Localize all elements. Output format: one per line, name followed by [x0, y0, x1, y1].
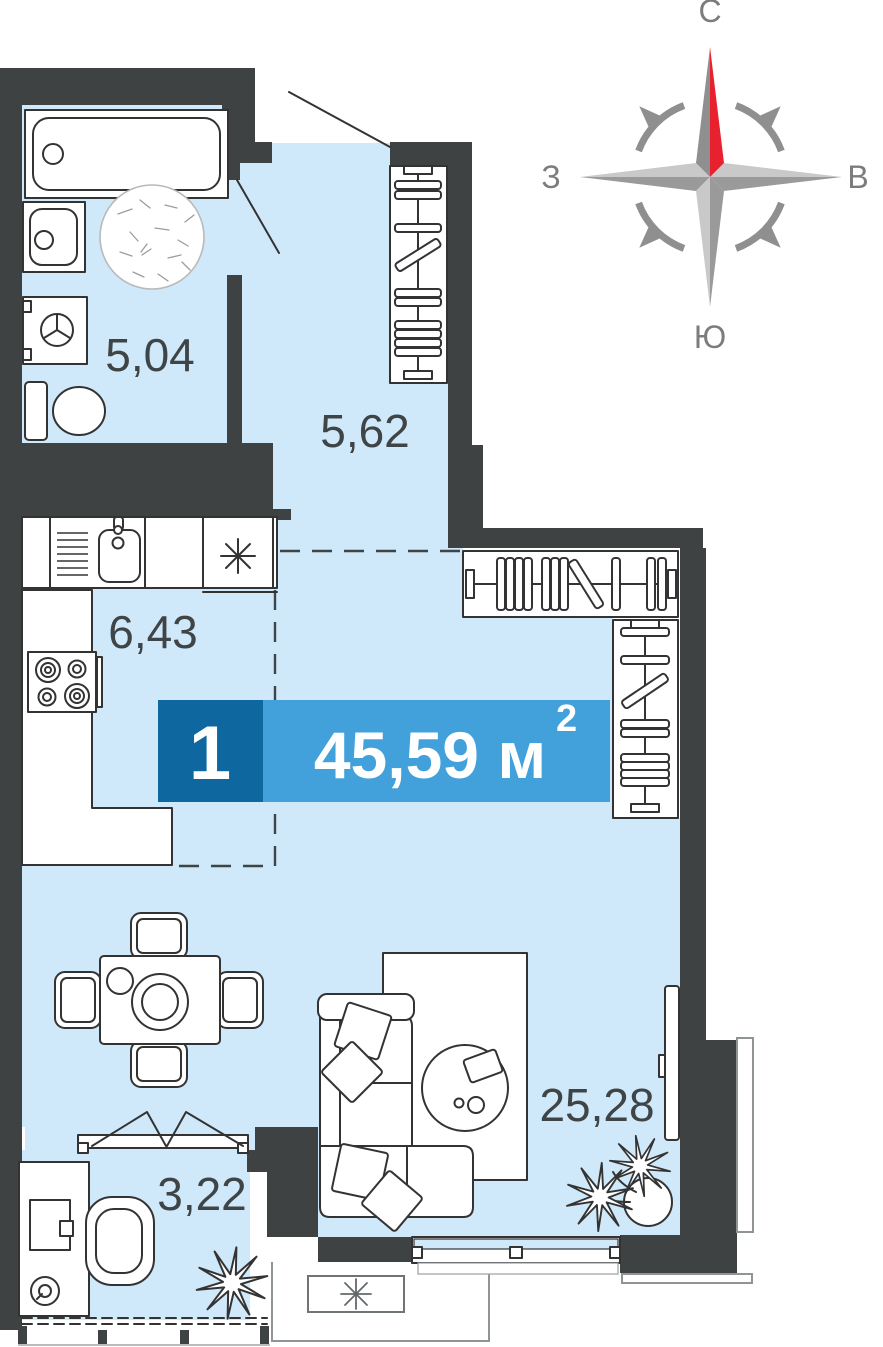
floor-plan-page: 1 45,59 м 2 5,04 5,62 6,43 25,28 3,22: [0, 0, 883, 1347]
compass-north-label: С: [698, 0, 721, 29]
stove: [28, 652, 102, 712]
unit-banner: 1 45,59 м 2: [158, 698, 610, 802]
compass-rose: С Ю З В: [541, 0, 868, 355]
hallway-wardrobe: [390, 166, 447, 383]
ac-unit: [308, 1276, 404, 1312]
unit-area-exponent: 2: [556, 698, 577, 740]
round-rug: [100, 185, 204, 289]
armchair: [86, 1197, 154, 1285]
cup: [107, 968, 133, 994]
balcony-desk: [19, 1162, 89, 1316]
room-label-bathroom: 5,04: [105, 329, 195, 381]
room-label-living-room: 25,28: [539, 1079, 654, 1131]
compass-east-label: В: [847, 159, 868, 195]
room-label-kitchen: 6,43: [108, 606, 198, 658]
fridge: [203, 517, 277, 592]
unit-rooms-count: 1: [189, 711, 231, 796]
coffee-table: [422, 1045, 508, 1131]
toilet: [25, 382, 105, 440]
floor-plan-svg: 1 45,59 м 2 5,04 5,62 6,43 25,28 3,22: [0, 0, 883, 1347]
living-wardrobe-top: [463, 551, 678, 617]
asterisk-icon: [221, 539, 255, 573]
drainboard: [57, 533, 88, 575]
room-label-balcony: 3,22: [157, 1168, 247, 1220]
entrance-door-line: [289, 92, 390, 147]
dining-chair: [217, 972, 263, 1028]
bathroom-sink: [23, 202, 85, 272]
washing-machine: [23, 297, 87, 364]
dining-chair: [131, 913, 187, 959]
dining-chair: [55, 972, 101, 1028]
compass-star: [580, 47, 842, 307]
living-wardrobe-right: [613, 620, 678, 818]
unit-area-label: 45,59 м: [314, 718, 546, 792]
asterisk-icon: [341, 1279, 371, 1309]
compass-south-label: Ю: [694, 319, 726, 355]
compass-west-label: З: [541, 159, 560, 195]
main-window: [412, 1237, 620, 1274]
compass-north-needle: [710, 47, 724, 177]
balcony-glazing: [18, 1318, 270, 1345]
bathtub: [25, 110, 228, 198]
dining-chair: [131, 1041, 187, 1087]
room-label-hallway: 5,62: [320, 405, 410, 457]
